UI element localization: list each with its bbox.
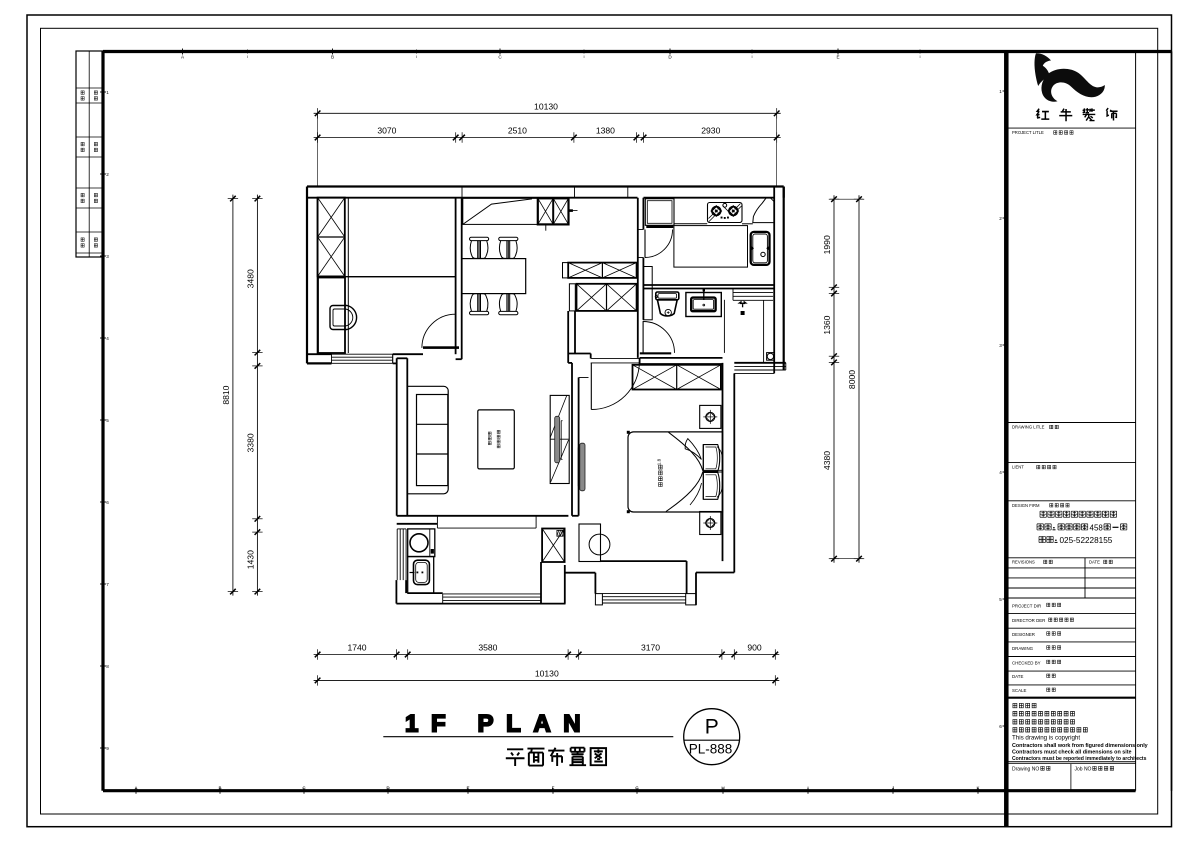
svg-text:REVISIONS: REVISIONS bbox=[1012, 560, 1035, 565]
svg-text:DRAWING: DRAWING bbox=[1012, 646, 1034, 651]
svg-text:2510: 2510 bbox=[508, 126, 527, 136]
svg-text:I: I bbox=[751, 55, 752, 59]
svg-text:025-52228155: 025-52228155 bbox=[1060, 536, 1113, 545]
svg-text:I: I bbox=[416, 55, 417, 59]
svg-text:3170: 3170 bbox=[641, 643, 660, 653]
svg-text:458: 458 bbox=[1090, 523, 1104, 532]
svg-text:I: I bbox=[247, 55, 248, 59]
svg-text:3070: 3070 bbox=[377, 126, 396, 136]
svg-text:DESIGN FIRM: DESIGN FIRM bbox=[1012, 503, 1040, 508]
svg-text:3380: 3380 bbox=[246, 433, 256, 452]
svg-text:9: 9 bbox=[106, 746, 109, 751]
svg-text:PL-888: PL-888 bbox=[689, 742, 733, 757]
svg-text:7: 7 bbox=[106, 582, 109, 587]
svg-text:I: I bbox=[583, 55, 584, 59]
svg-text:6: 6 bbox=[999, 724, 1002, 729]
svg-text:DRAWING LITLE: DRAWING LITLE bbox=[1012, 425, 1045, 430]
svg-text:4: 4 bbox=[999, 470, 1002, 475]
svg-text:1990: 1990 bbox=[822, 235, 832, 254]
svg-text:P: P bbox=[705, 716, 719, 739]
svg-text:1.8: 1.8 bbox=[657, 458, 662, 465]
svg-text:2930: 2930 bbox=[701, 126, 720, 136]
svg-text:8810: 8810 bbox=[221, 385, 231, 404]
svg-text:I: I bbox=[919, 55, 920, 59]
svg-text:1380: 1380 bbox=[596, 126, 615, 136]
svg-text:10130: 10130 bbox=[534, 102, 558, 112]
svg-text:10130: 10130 bbox=[535, 669, 559, 679]
svg-text:CHECKED BY: CHECKED BY bbox=[1012, 660, 1041, 665]
svg-text:LIENT: LIENT bbox=[1012, 465, 1024, 470]
svg-text:1: 1 bbox=[999, 89, 1002, 94]
svg-text:1430: 1430 bbox=[246, 550, 256, 569]
svg-text:3: 3 bbox=[999, 343, 1002, 348]
svg-text:6: 6 bbox=[106, 500, 109, 505]
svg-text:Drawing NO: Drawing NO bbox=[1012, 767, 1039, 773]
svg-text:SCALE: SCALE bbox=[1012, 688, 1026, 693]
svg-text:Contractors must check all dim: Contractors must check all dimensions on… bbox=[1012, 749, 1132, 755]
svg-text:4: 4 bbox=[106, 336, 109, 341]
svg-text:1: 1 bbox=[106, 90, 109, 95]
svg-text:3: 3 bbox=[106, 254, 109, 259]
svg-text:900: 900 bbox=[747, 643, 762, 653]
svg-text:PROJECT LITLE: PROJECT LITLE bbox=[1012, 130, 1044, 135]
svg-text:1740: 1740 bbox=[347, 643, 366, 653]
svg-text:5: 5 bbox=[999, 597, 1002, 602]
svg-text:B: B bbox=[331, 55, 334, 60]
svg-text:1F PLAN: 1F PLAN bbox=[405, 711, 593, 738]
svg-text:DESIGNER: DESIGNER bbox=[1012, 632, 1035, 637]
svg-text:4380: 4380 bbox=[822, 451, 832, 470]
svg-text:DIRECTOR DER: DIRECTOR DER bbox=[1012, 618, 1045, 623]
svg-text:PROJECT DIR: PROJECT DIR bbox=[1012, 603, 1041, 608]
svg-text:5: 5 bbox=[106, 418, 109, 423]
svg-text:E: E bbox=[836, 55, 839, 60]
svg-text:2: 2 bbox=[106, 172, 109, 177]
svg-text:Contractors must be reported i: Contractors must be reported immediately… bbox=[1012, 756, 1147, 762]
svg-text:Job NO: Job NO bbox=[1075, 767, 1092, 773]
svg-text:DATE: DATE bbox=[1012, 674, 1023, 679]
svg-text:3580: 3580 bbox=[478, 643, 497, 653]
svg-text:8000: 8000 bbox=[847, 370, 857, 389]
svg-text:DATE: DATE bbox=[1089, 560, 1100, 565]
svg-text:3480: 3480 bbox=[246, 269, 256, 288]
svg-text:1360: 1360 bbox=[822, 315, 832, 334]
svg-text:2: 2 bbox=[999, 216, 1002, 221]
svg-text:This drawing is copyright: This drawing is copyright bbox=[1012, 735, 1080, 742]
svg-text:8: 8 bbox=[106, 664, 109, 669]
svg-text:Contractors shall work from fi: Contractors shall work from figured dime… bbox=[1012, 743, 1148, 749]
